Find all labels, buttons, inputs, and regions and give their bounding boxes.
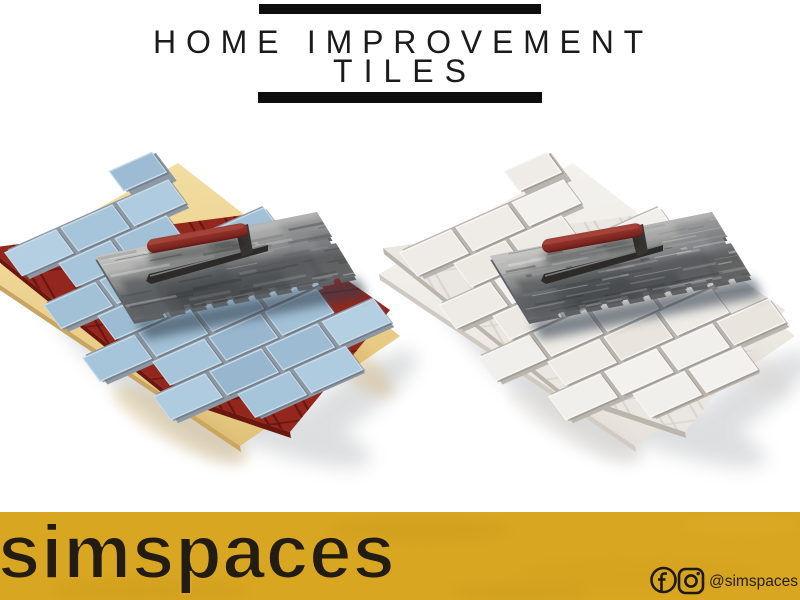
svg-text:@simspaces: @simspaces	[709, 573, 798, 590]
